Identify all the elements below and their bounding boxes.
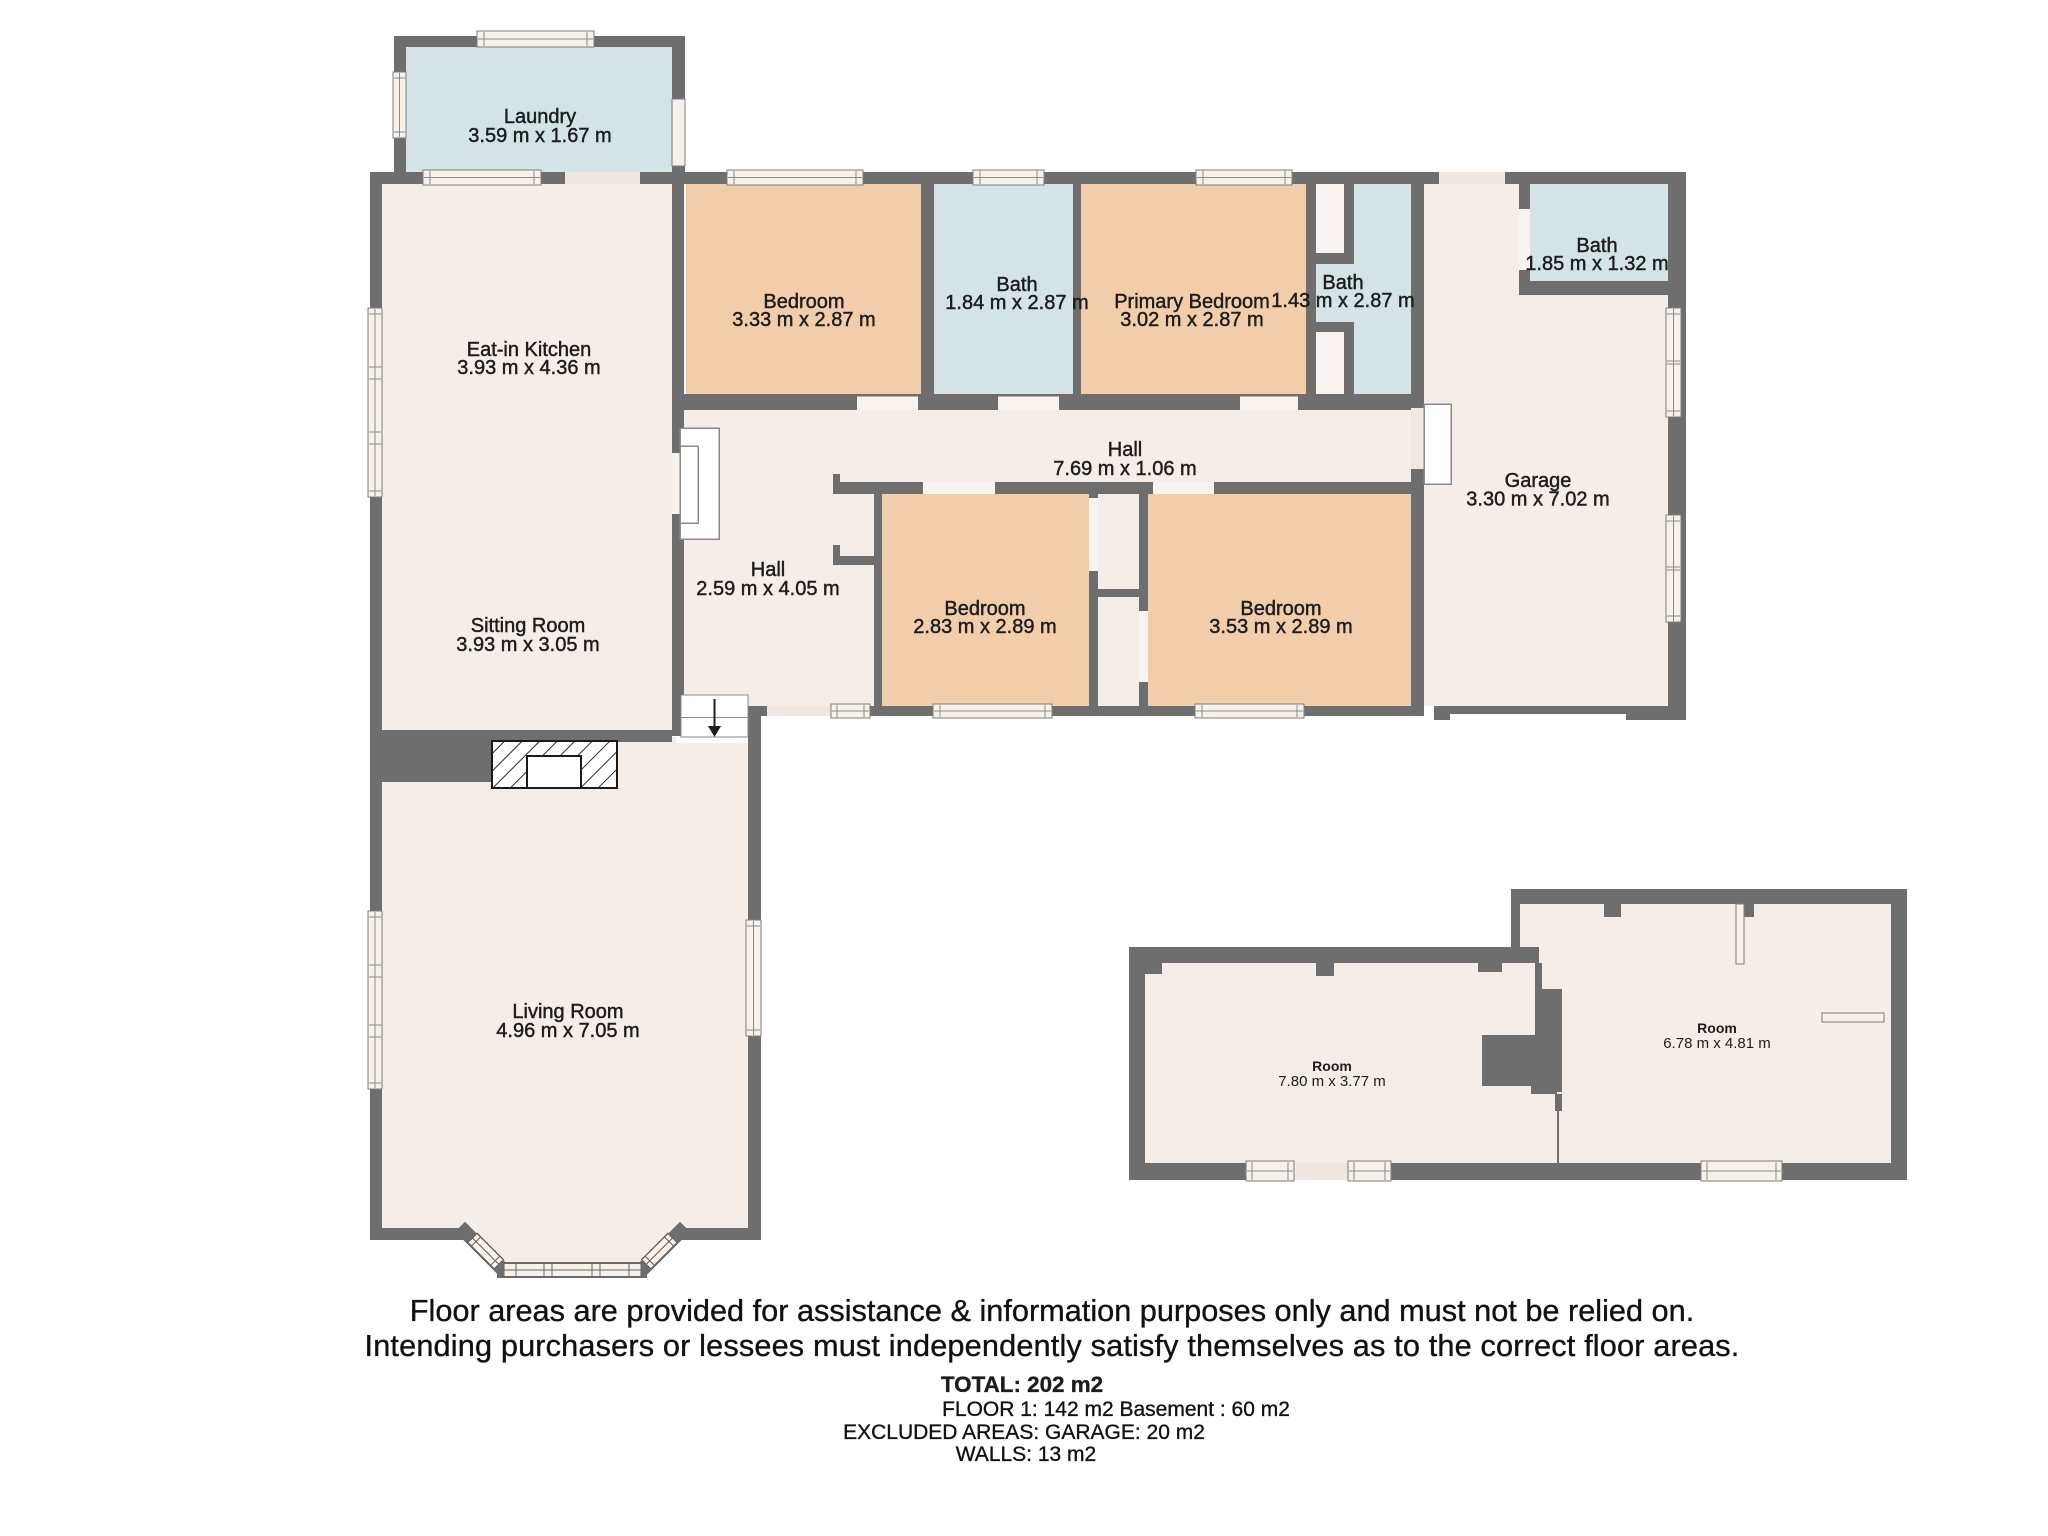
svg-text:TOTAL: 202 m2: TOTAL: 202 m2 <box>941 1372 1103 1397</box>
svg-text:3.33 m x 2.87 m: 3.33 m x 2.87 m <box>732 309 875 331</box>
svg-text:2.59 m x 4.05 m: 2.59 m x 4.05 m <box>696 578 839 600</box>
svg-text:WALLS: 13 m2: WALLS: 13 m2 <box>956 1443 1096 1466</box>
svg-text:7.80 m x 3.77 m: 7.80 m x 3.77 m <box>1278 1073 1386 1090</box>
svg-text:6.78 m x 4.81 m: 6.78 m x 4.81 m <box>1663 1035 1771 1052</box>
svg-text:3.59 m x 1.67 m: 3.59 m x 1.67 m <box>468 125 611 147</box>
svg-text:EXCLUDED AREAS: GARAGE: 20 m2: EXCLUDED AREAS: GARAGE: 20 m2 <box>843 1421 1205 1444</box>
svg-text:Intending purchasers or lessee: Intending purchasers or lessees must ind… <box>365 1328 1740 1363</box>
svg-text:Room: Room <box>1697 1020 1737 1036</box>
svg-text:7.69 m x 1.06 m: 7.69 m x 1.06 m <box>1053 458 1196 480</box>
svg-text:3.53 m x 2.89 m: 3.53 m x 2.89 m <box>1209 616 1352 638</box>
svg-text:FLOOR 1: 142 m2 Basement : 60: FLOOR 1: 142 m2 Basement : 60 m2 <box>942 1398 1290 1421</box>
svg-text:3.93 m x 4.36 m: 3.93 m x 4.36 m <box>457 357 600 379</box>
svg-text:3.93 m x 3.05 m: 3.93 m x 3.05 m <box>456 634 599 656</box>
svg-text:4.96 m x 7.05 m: 4.96 m x 7.05 m <box>496 1020 639 1042</box>
svg-text:Room: Room <box>1312 1058 1352 1074</box>
svg-text:2.83 m x 2.89 m: 2.83 m x 2.89 m <box>913 616 1056 638</box>
svg-text:1.84 m x 2.87 m: 1.84 m x 2.87 m <box>945 292 1088 314</box>
svg-text:1.43 m x 2.87 m: 1.43 m x 2.87 m <box>1271 290 1414 312</box>
svg-text:3.02 m x 2.87 m: 3.02 m x 2.87 m <box>1120 309 1263 331</box>
svg-text:Floor areas are provided for a: Floor areas are provided for assistance … <box>410 1293 1694 1328</box>
svg-text:3.30 m x 7.02 m: 3.30 m x 7.02 m <box>1466 489 1609 511</box>
svg-text:1.85 m x 1.32 m: 1.85 m x 1.32 m <box>1525 253 1668 275</box>
